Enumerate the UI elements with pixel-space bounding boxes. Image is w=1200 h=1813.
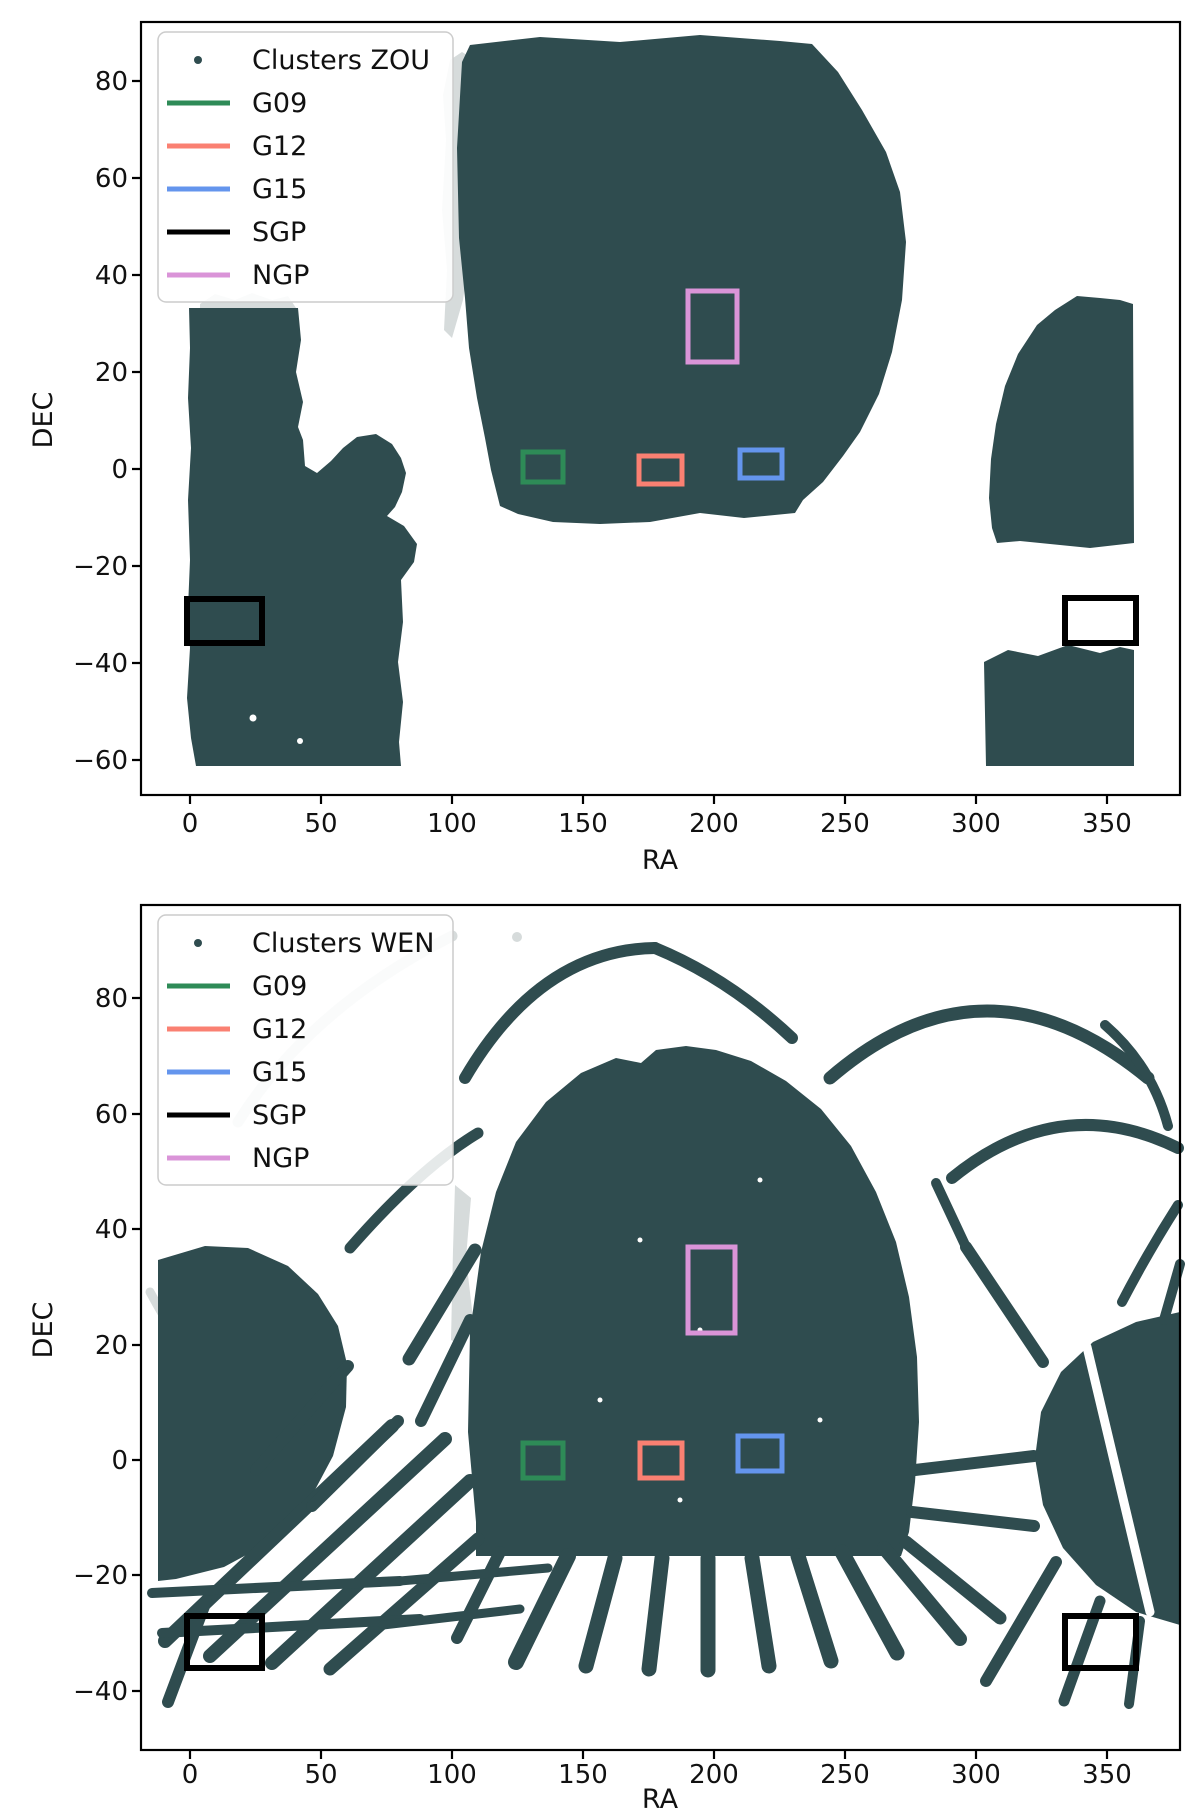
legend-entry-g12: G12 <box>252 1014 307 1045</box>
zou-yaxis-label: DEC <box>28 392 59 449</box>
y-tick: 80 <box>95 984 128 1014</box>
pinhole <box>638 1238 643 1243</box>
y-tick: 0 <box>111 455 128 485</box>
pinhole <box>818 1418 823 1423</box>
zou-region-right-upper <box>989 296 1134 548</box>
wen-streak <box>330 1539 478 1669</box>
wen-arc <box>952 1125 1178 1178</box>
zou-y-tick-labels: 80 60 40 20 0 −20 −40 −60 <box>73 67 128 776</box>
x-tick: 50 <box>304 1760 337 1790</box>
legend-entry-clusters: Clusters ZOU <box>252 45 430 76</box>
wen-y-tickmarks <box>132 998 141 1691</box>
wen-streak <box>1164 1264 1180 1320</box>
x-tick: 300 <box>951 809 1001 839</box>
wen-region-right-blob <box>1035 1312 1180 1625</box>
wen-x-tickmarks <box>190 1750 1107 1759</box>
pinhole <box>678 1498 683 1503</box>
legend-entry-g15: G15 <box>252 1057 307 1088</box>
wen-legend: Clusters WEN G09 G12 G15 SGP NGP <box>158 915 453 1185</box>
zou-legend: Clusters ZOU G09 G12 G15 SGP NGP <box>158 32 453 302</box>
x-tick: 150 <box>558 809 608 839</box>
legend-entry-g09: G09 <box>252 971 307 1002</box>
x-tick: 0 <box>182 809 199 839</box>
x-tick: 50 <box>304 809 337 839</box>
wen-streak <box>586 1558 615 1666</box>
y-tick: 0 <box>111 1446 128 1476</box>
legend-entry-ngp: NGP <box>252 260 309 291</box>
wen-streak <box>152 1581 400 1593</box>
x-tick: 350 <box>1082 1760 1132 1790</box>
y-tick: 80 <box>95 67 128 97</box>
wen-region-left-blob <box>158 1246 347 1581</box>
wen-streak <box>966 1247 1043 1362</box>
y-tick: 20 <box>95 1331 128 1361</box>
zou-hole <box>250 715 257 722</box>
wen-streak <box>912 1512 1034 1526</box>
zou-y-tickmarks <box>132 81 141 760</box>
legend-entry-g15: G15 <box>252 174 307 205</box>
wen-yaxis-label: DEC <box>28 1302 59 1359</box>
zou-region-right-lower <box>984 645 1134 766</box>
x-tick: 200 <box>689 1760 739 1790</box>
pinhole <box>758 1178 763 1183</box>
wen-streak <box>842 1552 897 1653</box>
y-tick: 60 <box>95 1100 128 1130</box>
zou-chart: 0 50 100 150 200 250 300 350 80 60 40 20… <box>0 0 1200 880</box>
x-tick: 350 <box>1082 809 1132 839</box>
zou-x-tick-labels: 0 50 100 150 200 250 300 350 <box>182 809 1132 839</box>
wen-y-tick-labels: 80 60 40 20 0 −20 −40 <box>73 984 128 1707</box>
zou-x-tickmarks <box>190 795 1107 804</box>
y-tick: −20 <box>73 552 128 582</box>
x-tick: 100 <box>427 809 477 839</box>
zou-region-left <box>187 308 417 766</box>
x-tick: 100 <box>427 1760 477 1790</box>
zou-sgp-right-box <box>1065 598 1136 643</box>
wen-masked-dot <box>512 932 522 942</box>
legend-entry-sgp: SGP <box>252 217 306 248</box>
x-tick: 150 <box>558 1760 608 1790</box>
zou-xaxis-label: RA <box>642 845 679 876</box>
x-tick: 200 <box>689 809 739 839</box>
x-tick: 0 <box>182 1760 199 1790</box>
y-tick: −40 <box>73 1677 128 1707</box>
wen-xaxis-label: RA <box>642 1784 679 1813</box>
wen-arc <box>465 948 655 1078</box>
wen-chart: 0 50 100 150 200 250 300 350 80 60 40 20… <box>0 880 1200 1813</box>
x-tick: 250 <box>820 1760 870 1790</box>
y-tick: 40 <box>95 261 128 291</box>
wen-streak <box>457 1552 500 1638</box>
scatter-marker-icon <box>194 939 202 947</box>
zou-hole <box>297 738 303 744</box>
wen-arc <box>830 1011 1148 1078</box>
wen-streak <box>649 1558 662 1669</box>
x-tick: 250 <box>820 809 870 839</box>
wen-streak <box>752 1558 769 1666</box>
wen-streak <box>400 1568 548 1581</box>
y-tick: 40 <box>95 1215 128 1245</box>
y-tick: −60 <box>73 746 128 776</box>
scatter-marker-icon <box>194 56 202 64</box>
wen-streak <box>798 1556 831 1661</box>
wen-arc <box>655 948 792 1038</box>
legend-entry-g12: G12 <box>252 131 307 162</box>
pinhole <box>598 1398 603 1403</box>
y-tick: −40 <box>73 649 128 679</box>
wen-streak <box>936 1183 966 1247</box>
legend-entry-sgp: SGP <box>252 1100 306 1131</box>
wen-streak <box>906 1542 1000 1618</box>
y-tick: 20 <box>95 358 128 388</box>
y-tick: −20 <box>73 1561 128 1591</box>
legend-entry-clusters: Clusters WEN <box>252 928 434 959</box>
legend-entry-g09: G09 <box>252 88 307 119</box>
wen-streak <box>915 1456 1034 1470</box>
y-tick: 60 <box>95 164 128 194</box>
x-tick: 300 <box>951 1760 1001 1790</box>
legend-entry-ngp: NGP <box>252 1143 309 1174</box>
